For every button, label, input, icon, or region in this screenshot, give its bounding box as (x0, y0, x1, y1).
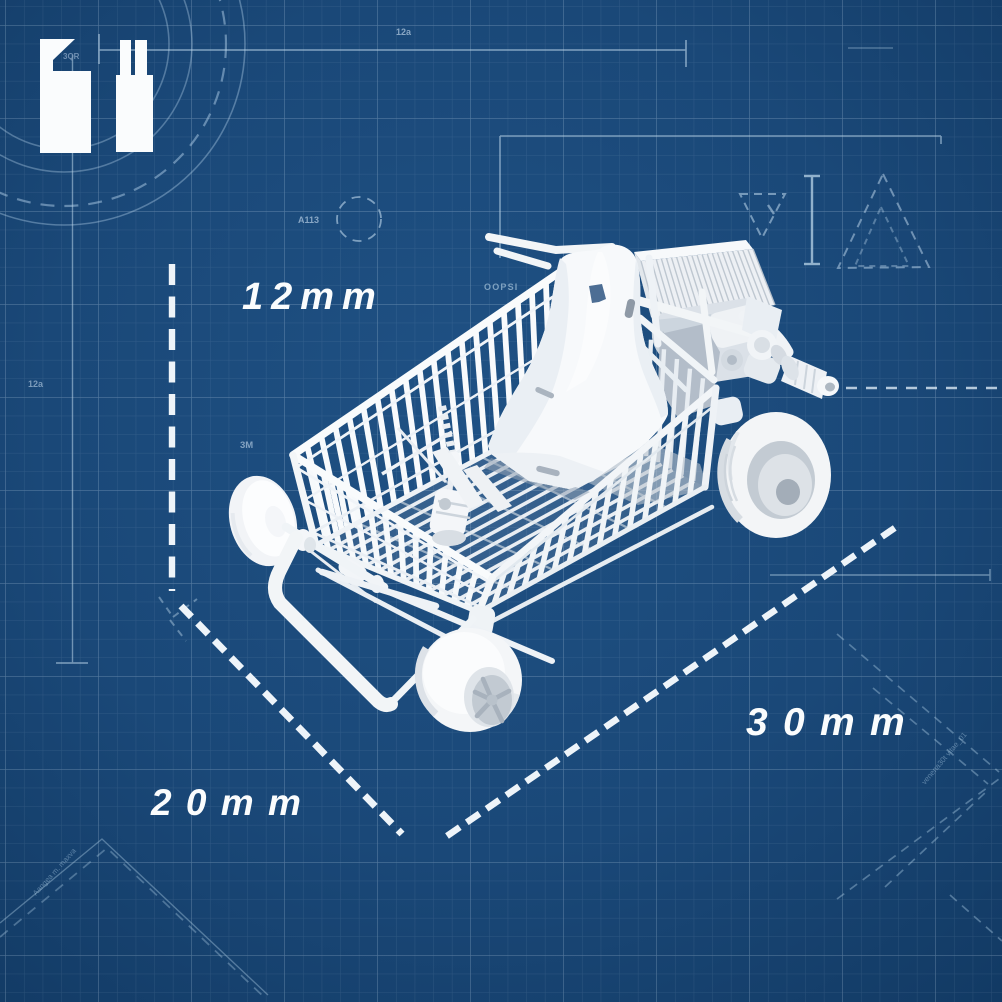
svg-text:30mm: 30mm (746, 701, 920, 744)
svg-text:12a: 12a (396, 27, 412, 37)
svg-text:20mm: 20mm (150, 782, 315, 823)
svg-text:12a: 12a (28, 379, 44, 389)
svg-text:OOPSI: OOPSI (484, 282, 519, 292)
svg-text:3QR: 3QR (63, 52, 80, 61)
svg-text:12mm: 12mm (242, 276, 384, 318)
svg-text:A113: A113 (298, 215, 319, 225)
svg-text:3M: 3M (240, 440, 253, 451)
